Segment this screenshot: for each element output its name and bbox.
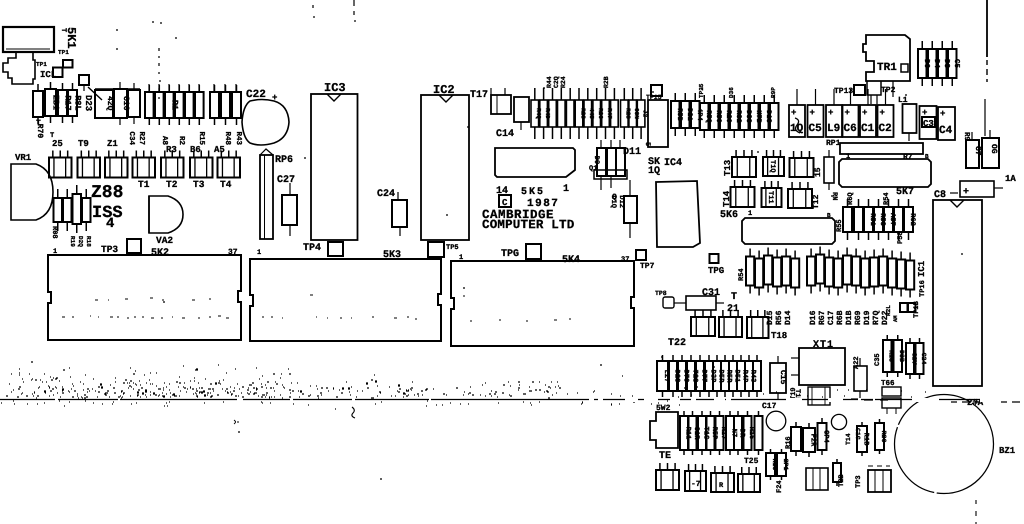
svg-text:T14: T14	[722, 190, 732, 207]
svg-text:B6: B6	[190, 145, 201, 155]
svg-text:1: 1	[563, 184, 569, 195]
svg-text:TE: TE	[659, 451, 671, 462]
svg-text:T2: T2	[166, 179, 178, 190]
svg-text:R43: R43	[234, 131, 243, 145]
svg-text:R7: R7	[903, 153, 913, 162]
svg-text:D9: D9	[592, 156, 600, 164]
svg-text:XT1: XT1	[813, 340, 834, 351]
svg-text:5K2: 5K2	[151, 248, 169, 259]
svg-text:TP3: TP3	[855, 475, 863, 488]
svg-text:R24: R24	[560, 76, 567, 88]
svg-text:R19: R19	[69, 236, 76, 247]
svg-text:1: 1	[846, 153, 850, 161]
svg-text:TP1: TP1	[58, 49, 69, 56]
svg-text:445: 445	[588, 108, 595, 119]
svg-text:TP1B: TP1B	[913, 300, 921, 318]
svg-text:C7: C7	[973, 146, 982, 156]
svg-text:R48: R48	[223, 131, 232, 145]
svg-text:IC1: IC1	[917, 260, 927, 277]
svg-text:R2: R2	[177, 136, 186, 146]
svg-text:TP16: TP16	[919, 280, 927, 297]
svg-text:Z88: Z88	[91, 183, 123, 203]
svg-text:R47: R47	[606, 108, 613, 119]
svg-text:15: 15	[814, 167, 823, 177]
svg-text:VA2: VA2	[156, 235, 173, 246]
svg-text:+: +	[809, 108, 814, 118]
svg-text:F2R: F2R	[809, 434, 817, 447]
svg-text:D36: D36	[728, 87, 735, 98]
svg-text:TP1: TP1	[36, 61, 47, 68]
svg-text:F24: F24	[776, 480, 784, 493]
svg-text:-7: -7	[691, 480, 701, 489]
svg-text:T12: T12	[812, 194, 821, 209]
svg-text:IC4: IC4	[664, 158, 682, 169]
svg-text:TP7: TP7	[640, 262, 655, 271]
svg-text:T9: T9	[78, 139, 89, 149]
svg-text:5K6: 5K6	[720, 210, 738, 221]
svg-text:+: +	[828, 108, 833, 118]
svg-text:+: +	[940, 109, 945, 119]
svg-text:R62: R62	[908, 213, 916, 226]
svg-text:R6B: R6B	[836, 310, 845, 325]
svg-text:R18: R18	[85, 236, 92, 247]
svg-text:C27: C27	[277, 175, 295, 186]
svg-text:R4Q: R4Q	[535, 108, 542, 119]
svg-text:VR1: VR1	[15, 153, 32, 163]
svg-text:R7Q: R7Q	[872, 310, 881, 325]
svg-text:C17: C17	[827, 310, 836, 325]
svg-text:D23: D23	[83, 95, 93, 111]
svg-text:C1: C1	[861, 123, 875, 135]
svg-text:TP2: TP2	[881, 86, 896, 95]
svg-text:T: T	[50, 132, 54, 140]
svg-text:TP25: TP25	[698, 83, 705, 98]
svg-text:T22: T22	[668, 338, 686, 349]
svg-text:21: 21	[727, 304, 739, 315]
svg-text:T3: T3	[193, 179, 205, 190]
svg-text:T18: T18	[771, 331, 787, 341]
svg-text:R27: R27	[137, 131, 146, 145]
svg-text:D77: D77	[700, 370, 708, 383]
svg-text:T13: T13	[723, 160, 733, 176]
svg-text:1: 1	[748, 210, 752, 218]
svg-text:R3: R3	[166, 145, 177, 155]
svg-text:TR1: TR1	[877, 62, 897, 74]
svg-text:TP3: TP3	[101, 244, 118, 255]
svg-text:93N: 93N	[633, 108, 640, 119]
svg-text:D11: D11	[623, 147, 641, 158]
svg-text:R08: R08	[50, 226, 58, 239]
svg-text:D23: D23	[673, 370, 681, 383]
svg-text:TPG: TPG	[501, 249, 519, 260]
svg-text:T11: T11	[766, 191, 774, 204]
svg-text:C2: C2	[878, 123, 891, 135]
svg-text:D16: D16	[809, 310, 818, 325]
svg-text:T25: T25	[744, 457, 759, 466]
svg-text:D3B: D3B	[898, 350, 905, 362]
svg-text:OG: OG	[989, 144, 998, 154]
svg-text:TPG: TPG	[708, 266, 724, 276]
svg-text:42Q: 42Q	[105, 96, 114, 111]
svg-text:C3: C3	[923, 119, 934, 129]
svg-text:C5: C5	[952, 59, 961, 69]
svg-text:25: 25	[52, 139, 63, 149]
svg-text:R2L: R2L	[885, 305, 892, 316]
svg-text:AM: AM	[892, 315, 899, 322]
svg-text:B: B	[827, 212, 831, 219]
svg-text:1Q: 1Q	[648, 166, 660, 177]
svg-text:D79: D79	[682, 370, 690, 383]
svg-text:C24: C24	[377, 189, 395, 200]
svg-text:5K7: 5K7	[896, 187, 914, 198]
svg-text:Z1: Z1	[107, 139, 118, 149]
svg-text:R1B: R1B	[862, 433, 870, 446]
svg-text:T: T	[36, 119, 41, 128]
svg-text:1: 1	[257, 249, 261, 257]
svg-text:C5: C5	[808, 123, 822, 135]
svg-text:TP5: TP5	[446, 244, 459, 252]
svg-text:T4: T4	[220, 179, 232, 190]
svg-text:T: T	[59, 28, 67, 32]
svg-text:T2B: T2B	[838, 474, 846, 487]
svg-text:D19: D19	[863, 310, 872, 325]
svg-text:RP6: RP6	[275, 155, 293, 166]
svg-text:D3: D3	[942, 59, 951, 69]
svg-text:A5: A5	[214, 145, 225, 155]
svg-text:T17: T17	[470, 90, 488, 101]
svg-text:R54: R54	[738, 268, 746, 281]
svg-text:D1B: D1B	[845, 310, 854, 325]
svg-text:C2Q: C2Q	[553, 76, 560, 88]
svg-text:+: +	[879, 108, 884, 118]
svg-text:ZB1: ZB1	[51, 95, 61, 110]
svg-text:5: 5	[643, 142, 651, 146]
svg-text:IC3: IC3	[324, 81, 346, 95]
svg-text:1A: 1A	[1005, 174, 1016, 184]
svg-text:C: C	[502, 198, 508, 208]
svg-text:R2B: R2B	[603, 76, 610, 88]
svg-text:C24: C24	[920, 353, 927, 365]
svg-text:C34: C34	[127, 131, 136, 145]
svg-text:R55: R55	[836, 219, 844, 232]
svg-text:T: T	[731, 292, 737, 303]
svg-text:R: R	[719, 482, 724, 490]
svg-text:R16: R16	[785, 436, 793, 449]
svg-text:R15: R15	[197, 131, 205, 145]
svg-text:TP8: TP8	[655, 290, 667, 297]
svg-text:D6: D6	[922, 59, 931, 69]
svg-text:C4: C4	[939, 125, 953, 137]
svg-text:Q1: Q1	[589, 165, 597, 173]
svg-text:TP4: TP4	[303, 243, 321, 254]
svg-text:R23: R23	[625, 108, 632, 119]
svg-text:R5P: R5P	[710, 427, 718, 440]
svg-text:R9P: R9P	[770, 87, 777, 98]
svg-text:4: 4	[106, 216, 114, 232]
svg-text:P58: P58	[897, 231, 905, 244]
svg-text:R26: R26	[597, 108, 604, 119]
svg-text:L9: L9	[827, 123, 840, 135]
svg-text:R26: R26	[880, 431, 887, 443]
svg-text:R4D: R4D	[544, 108, 551, 119]
svg-text:C35: C35	[874, 353, 882, 366]
svg-text:B: B	[925, 153, 929, 160]
svg-text:+: +	[791, 108, 796, 118]
svg-text:R44: R44	[546, 76, 553, 88]
svg-text:C31: C31	[702, 288, 720, 299]
svg-text:C14: C14	[496, 129, 514, 140]
svg-text:+: +	[963, 187, 969, 198]
svg-text:T14: T14	[845, 433, 852, 445]
svg-text:4P4: 4P4	[695, 108, 703, 121]
svg-text:+: +	[844, 108, 849, 118]
svg-text:R8L: R8L	[73, 95, 83, 110]
svg-text:5K5: 5K5	[521, 187, 545, 198]
svg-text:R54: R54	[883, 192, 891, 205]
svg-text:D2Q: D2Q	[77, 236, 84, 247]
svg-text:D1Q: D1Q	[609, 195, 617, 208]
svg-text:RP1: RP1	[826, 139, 841, 148]
svg-text:T1: T1	[138, 179, 150, 190]
svg-text:C6: C6	[843, 123, 856, 135]
svg-text:R56: R56	[775, 310, 784, 325]
svg-text:BZ1: BZ1	[999, 446, 1016, 456]
svg-text:R23: R23	[579, 108, 586, 119]
svg-text:D14: D14	[784, 310, 793, 325]
svg-text:+: +	[862, 108, 867, 118]
svg-text:RG9: RG9	[854, 310, 863, 325]
svg-text:C17: C17	[762, 402, 777, 411]
svg-text:72S: 72S	[691, 370, 699, 383]
svg-text:CP4: CP4	[822, 430, 830, 443]
svg-text:COMPUTER LTD: COMPUTER LTD	[482, 218, 575, 232]
svg-text:R6Q: R6Q	[847, 192, 855, 205]
svg-text:C15: C15	[778, 370, 787, 385]
svg-text:T1Q: T1Q	[768, 160, 776, 173]
svg-text:2P1: 2P1	[782, 459, 789, 471]
svg-text:RG7: RG7	[818, 310, 827, 325]
